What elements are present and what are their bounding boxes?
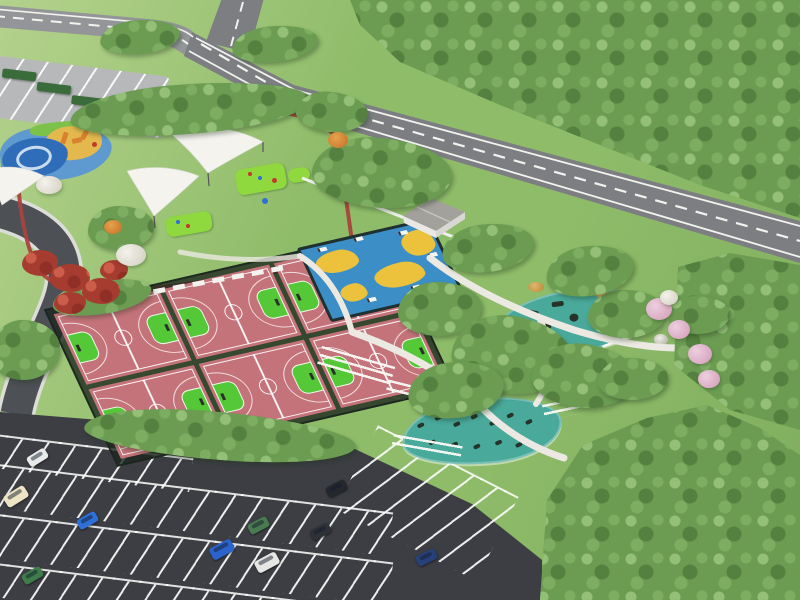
bench-equipment	[506, 412, 514, 419]
pink-flowering-tree	[688, 344, 712, 364]
white-flowering-tree	[116, 244, 146, 266]
court-center-circle	[256, 377, 280, 397]
bench-equipment	[525, 419, 533, 426]
play-equipment-dot	[186, 224, 190, 228]
tree-cluster	[231, 22, 320, 65]
play-equipment-dot	[92, 142, 97, 147]
bench-equipment	[453, 421, 461, 428]
bench-equipment	[495, 439, 503, 446]
forest-east-band	[670, 245, 800, 430]
bench-equipment	[515, 442, 523, 449]
play-mat	[287, 166, 311, 184]
play-equipment-dot	[258, 176, 262, 180]
pink-flowering-tree	[698, 370, 720, 388]
pink-flowering-tree	[668, 320, 690, 339]
red-flowering-bush	[82, 278, 120, 304]
play-equipment-dot	[248, 172, 252, 176]
park-aerial-rendering	[0, 0, 800, 600]
tree-cluster	[0, 320, 60, 380]
bench-equipment	[489, 420, 497, 427]
climbing-equipment	[551, 301, 564, 307]
court-center-circle	[221, 302, 245, 322]
autumn-tree	[104, 220, 122, 234]
tree-cluster	[598, 358, 668, 400]
tree-cluster	[99, 17, 181, 56]
yellow-play-blob	[337, 281, 370, 304]
hedge-island	[36, 82, 71, 95]
play-equipment-dot	[176, 220, 180, 224]
hedge-island	[2, 68, 37, 81]
play-slide	[262, 198, 268, 204]
bench-equipment	[417, 422, 425, 429]
mini-hoop	[366, 297, 376, 303]
mini-hoop	[353, 236, 363, 242]
climbing-equipment	[528, 310, 539, 317]
bench-equipment	[473, 443, 481, 450]
court-center-circle	[111, 328, 135, 348]
tan-shrub	[528, 282, 544, 292]
white-flowering-tree	[660, 290, 678, 305]
autumn-tree	[328, 132, 348, 148]
white-flowering-tree	[36, 176, 62, 194]
mini-hoop	[428, 252, 438, 258]
court-three-point-arc-left	[61, 317, 117, 375]
forest-southeast	[535, 400, 800, 600]
boulder	[654, 334, 668, 345]
red-flowering-bush	[54, 292, 86, 314]
play-equipment-dot	[272, 178, 277, 183]
climbing-equipment	[569, 313, 579, 322]
mini-hoop	[317, 247, 327, 253]
tree-cluster	[440, 219, 537, 276]
